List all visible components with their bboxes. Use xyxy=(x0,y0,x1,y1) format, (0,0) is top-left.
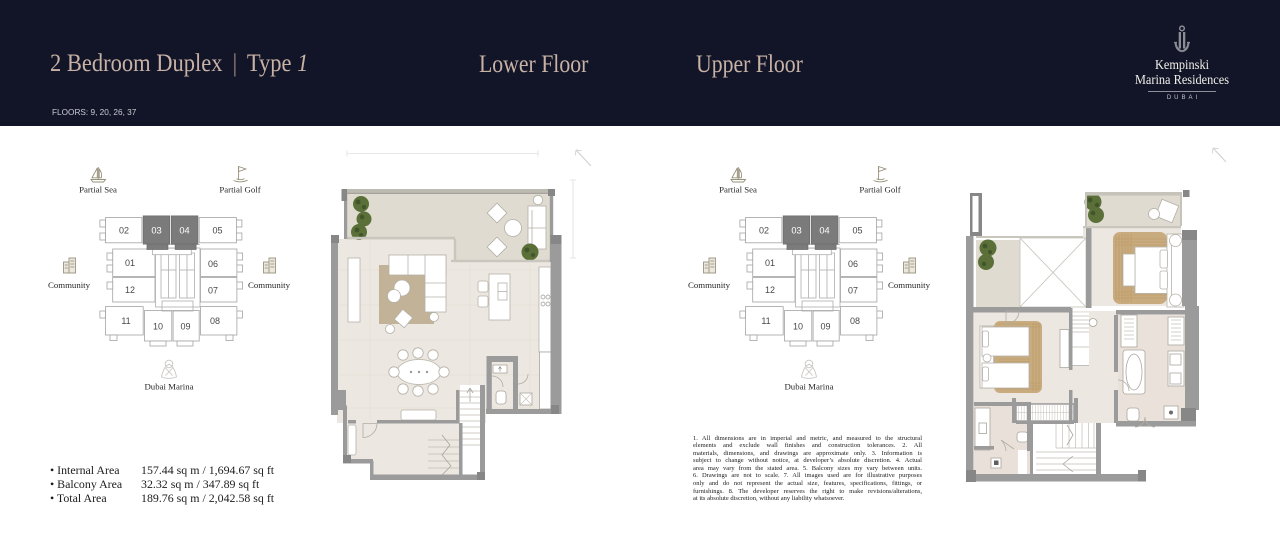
svg-text:04: 04 xyxy=(179,226,189,236)
svg-text:12: 12 xyxy=(125,285,135,295)
svg-text:06: 06 xyxy=(208,259,218,269)
svg-text:05: 05 xyxy=(212,226,222,236)
svg-text:Community: Community xyxy=(48,280,91,290)
svg-text:02: 02 xyxy=(119,226,129,236)
svg-text:Partial Golf: Partial Golf xyxy=(219,185,260,195)
svg-text:Dubai Marina: Dubai Marina xyxy=(144,382,193,392)
svg-text:Community: Community xyxy=(248,280,291,290)
svg-text:Partial Sea: Partial Sea xyxy=(79,185,117,195)
svg-text:10: 10 xyxy=(153,322,163,332)
svg-text:07: 07 xyxy=(208,286,218,296)
svg-text:09: 09 xyxy=(180,322,190,332)
svg-text:11: 11 xyxy=(121,316,130,326)
svg-text:08: 08 xyxy=(210,316,220,326)
svg-text:03: 03 xyxy=(151,226,161,236)
svg-text:01: 01 xyxy=(125,258,135,268)
